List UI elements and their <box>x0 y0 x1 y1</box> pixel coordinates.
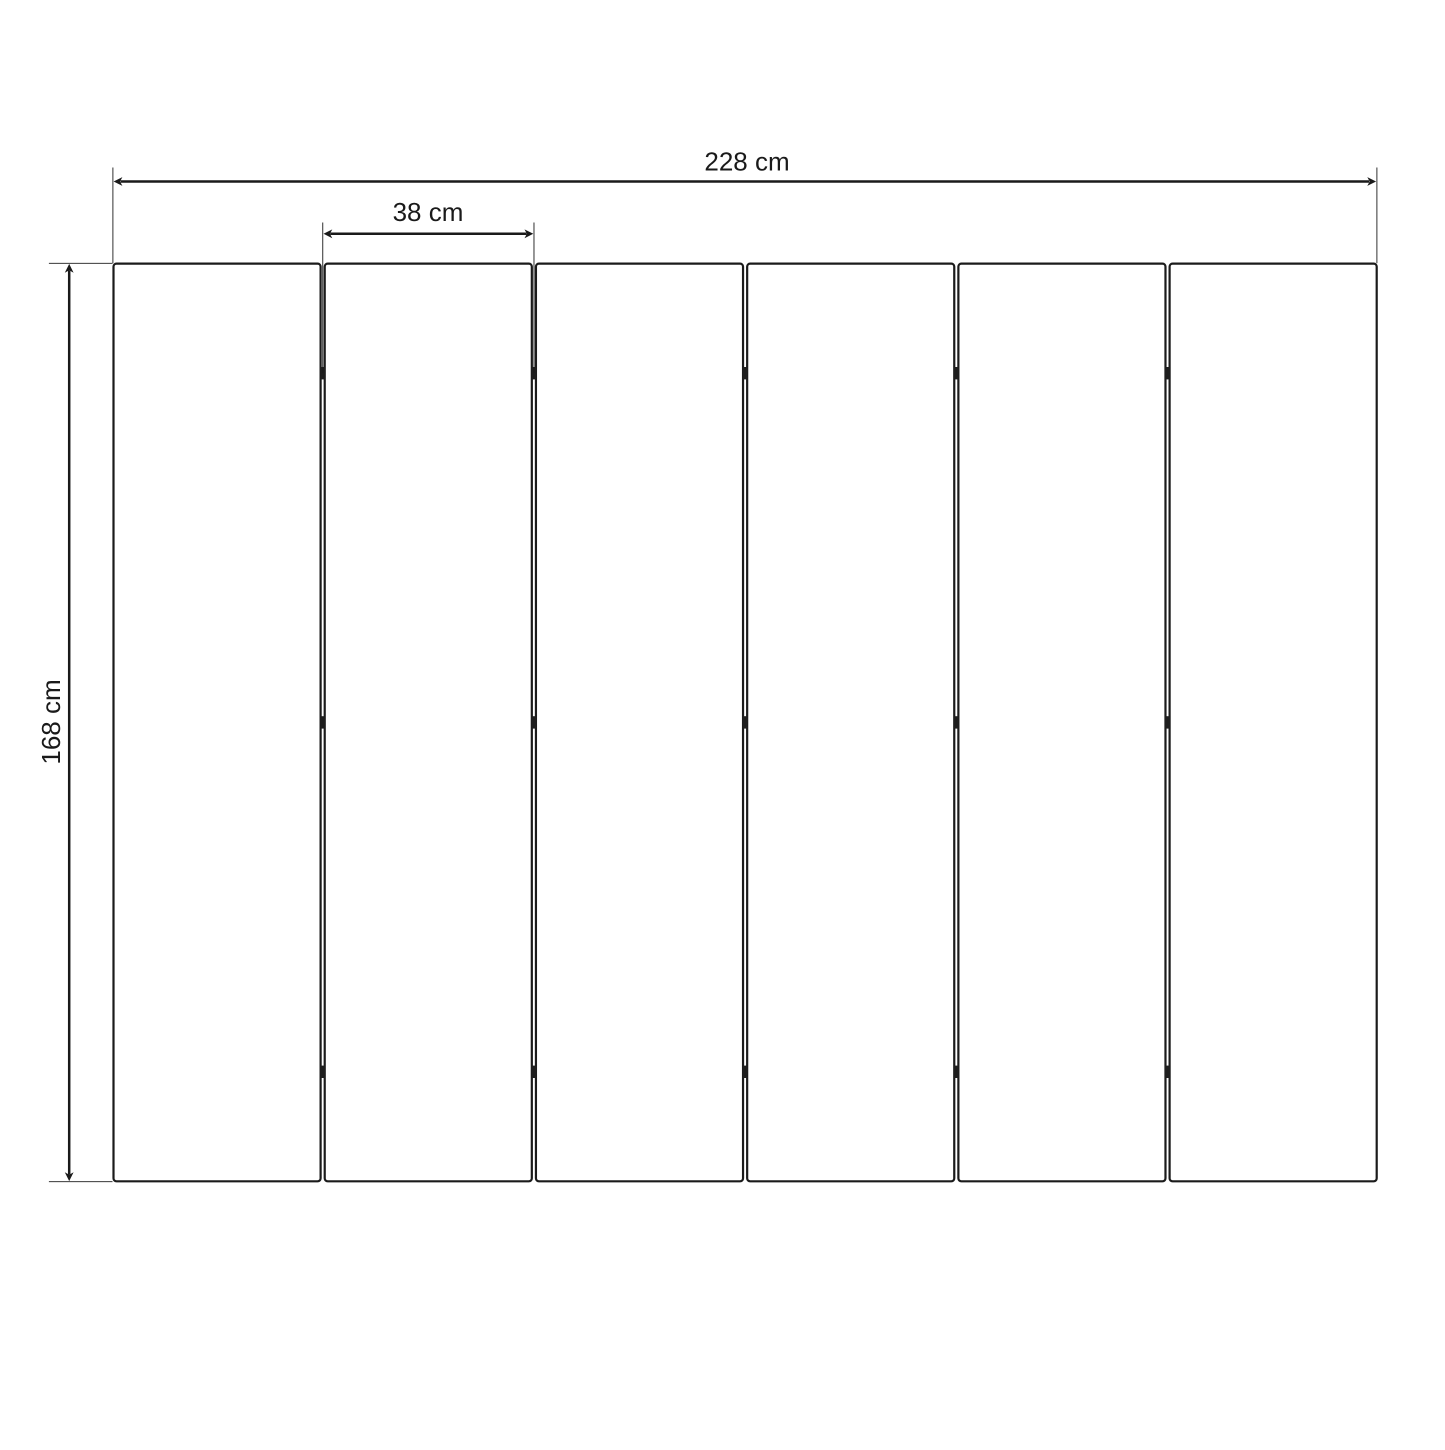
svg-text:38 cm: 38 cm <box>393 197 464 227</box>
svg-text:228 cm: 228 cm <box>704 147 789 177</box>
svg-text:168 cm: 168 cm <box>36 679 66 764</box>
